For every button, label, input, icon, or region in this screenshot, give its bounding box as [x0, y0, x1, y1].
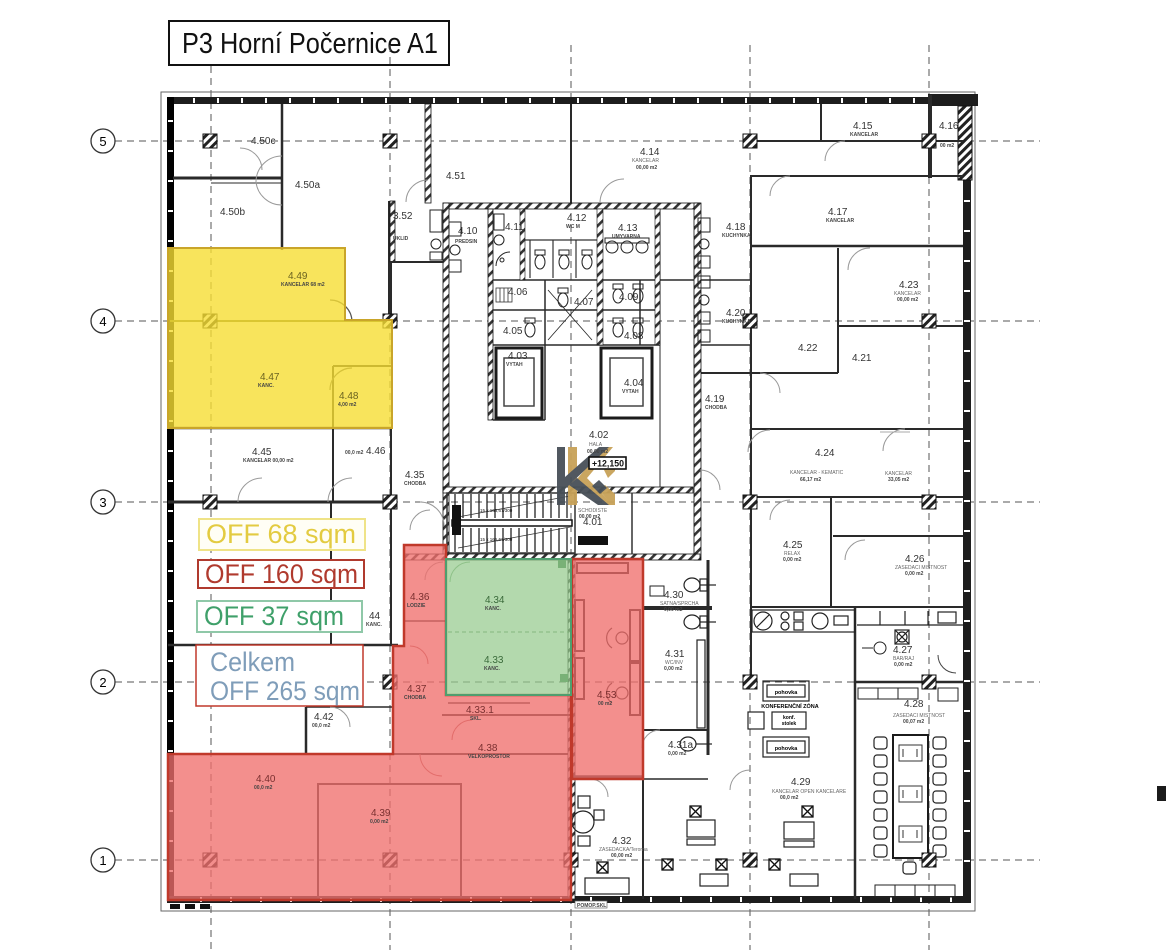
svg-text:+12,150: +12,150 — [592, 459, 624, 470]
svg-text:4.39: 4.39 — [371, 808, 391, 819]
svg-text:OFF 160 sqm: OFF 160 sqm — [205, 559, 358, 589]
svg-text:2: 2 — [99, 675, 106, 690]
svg-text:4.18: 4.18 — [726, 222, 746, 233]
svg-text:VYTAH: VYTAH — [506, 362, 523, 368]
svg-text:4.21: 4.21 — [852, 353, 872, 364]
svg-text:4.42: 4.42 — [314, 712, 334, 723]
svg-text:66,17 m2: 66,17 m2 — [800, 477, 821, 483]
svg-text:KUCHYNKA: KUCHYNKA — [722, 319, 751, 325]
svg-text:4,00 m2: 4,00 m2 — [338, 402, 357, 408]
svg-text:0,00 m2: 0,00 m2 — [668, 751, 687, 757]
svg-text:KANCELAR 68 m2: KANCELAR 68 m2 — [281, 282, 325, 288]
svg-text:WC M: WC M — [566, 224, 580, 230]
svg-text:00,0 m2: 00,0 m2 — [780, 795, 799, 801]
svg-text:0,00 m2: 0,00 m2 — [783, 557, 802, 563]
svg-text:4.02: 4.02 — [589, 430, 609, 441]
svg-text:0,00 m2: 0,00 m2 — [905, 571, 924, 577]
svg-text:VELKOPROSTOR: VELKOPROSTOR — [468, 754, 510, 760]
svg-text:33,05 m2: 33,05 m2 — [888, 477, 909, 483]
svg-text:4.15: 4.15 — [853, 121, 873, 132]
svg-text:4.26: 4.26 — [905, 554, 925, 565]
svg-text:00,00 m2: 00,00 m2 — [897, 297, 918, 303]
svg-text:4.30: 4.30 — [664, 590, 684, 601]
svg-text:KANCELAR - KEMATIC: KANCELAR - KEMATIC — [790, 470, 844, 476]
svg-text:4.04: 4.04 — [624, 378, 644, 389]
svg-text:4.31a: 4.31a — [668, 740, 693, 751]
svg-text:4.22: 4.22 — [798, 343, 818, 354]
svg-text:15 x 166,67/300: 15 x 166,67/300 — [480, 508, 513, 513]
svg-text:4.12: 4.12 — [567, 213, 587, 224]
svg-text:4.31: 4.31 — [665, 649, 685, 660]
svg-text:4.07: 4.07 — [574, 297, 594, 308]
svg-text:4.10: 4.10 — [458, 226, 478, 237]
svg-text:0,00 m2: 0,00 m2 — [370, 819, 389, 825]
svg-text:KANCELAR 00,00 m2: KANCELAR 00,00 m2 — [243, 458, 294, 464]
svg-text:P3 Horní Počernice A1: P3 Horní Počernice A1 — [182, 28, 438, 60]
svg-text:4.09: 4.09 — [619, 292, 639, 303]
svg-text:CHODBA: CHODBA — [404, 481, 426, 487]
svg-text:4.34: 4.34 — [485, 595, 505, 606]
svg-text:4.14: 4.14 — [640, 147, 660, 158]
svg-text:4.05: 4.05 — [503, 326, 523, 337]
svg-text:4.25: 4.25 — [783, 540, 803, 551]
svg-text:3: 3 — [99, 495, 106, 510]
svg-text:4.45: 4.45 — [252, 447, 272, 458]
svg-text:0,00 m2: 0,00 m2 — [664, 607, 683, 613]
svg-text:PREDSIN: PREDSIN — [455, 239, 478, 245]
svg-text:00,0 m2: 00,0 m2 — [345, 450, 364, 456]
svg-text:KANC.: KANC. — [485, 606, 501, 612]
svg-text:4.53: 4.53 — [597, 690, 617, 701]
svg-text:4.50c: 4.50c — [251, 136, 275, 147]
svg-text:OFF 68 sqm: OFF 68 sqm — [206, 519, 356, 549]
svg-text:00,00 m2: 00,00 m2 — [579, 514, 600, 520]
svg-text:OFF 37 sqm: OFF 37 sqm — [204, 601, 344, 631]
svg-text:OFF 265 sqm: OFF 265 sqm — [210, 676, 360, 706]
svg-text:4.35: 4.35 — [405, 470, 425, 481]
svg-text:0,00 m2: 0,00 m2 — [664, 666, 683, 672]
svg-text:pohovka: pohovka — [775, 690, 799, 696]
svg-text:4.03: 4.03 — [508, 351, 528, 362]
svg-text:00 m2: 00 m2 — [940, 143, 954, 149]
svg-text:00,07 m2: 00,07 m2 — [903, 719, 924, 725]
svg-text:4.29: 4.29 — [791, 777, 811, 788]
svg-text:KUCHYNKA: KUCHYNKA — [722, 233, 751, 239]
svg-text:VYTAH: VYTAH — [622, 389, 639, 395]
svg-text:CHODBA: CHODBA — [705, 405, 727, 411]
svg-text:UMYVARNA: UMYVARNA — [612, 234, 641, 240]
svg-text:4.13: 4.13 — [618, 223, 638, 234]
svg-text:4.06: 4.06 — [508, 287, 528, 298]
svg-text:4.33.1: 4.33.1 — [466, 705, 494, 716]
svg-text:00,00 m2: 00,00 m2 — [587, 449, 608, 455]
svg-text:UKLID: UKLID — [393, 236, 409, 242]
svg-text:4.17: 4.17 — [828, 207, 848, 218]
svg-text:LODZIE: LODZIE — [407, 603, 426, 609]
svg-text:00,00 m2: 00,00 m2 — [611, 853, 632, 859]
svg-text:00,0 m2: 00,0 m2 — [312, 723, 331, 729]
svg-text:4.38: 4.38 — [478, 743, 498, 754]
svg-text:SKL.: SKL. — [470, 716, 482, 722]
svg-text:KANC.: KANC. — [258, 383, 274, 389]
svg-text:4.50b: 4.50b — [220, 207, 245, 218]
svg-text:4.20: 4.20 — [726, 308, 746, 319]
svg-text:4.08: 4.08 — [624, 331, 644, 342]
svg-text:0,00 m2: 0,00 m2 — [894, 662, 913, 668]
svg-text:3.52: 3.52 — [393, 211, 413, 222]
svg-text:KONFERENČNÍ ZÓNA: KONFERENČNÍ ZÓNA — [761, 702, 818, 710]
svg-text:4.24: 4.24 — [815, 448, 835, 459]
svg-text:4.28: 4.28 — [904, 699, 924, 710]
svg-text:KANCELAR: KANCELAR — [850, 132, 878, 138]
svg-text:4.11: 4.11 — [505, 222, 524, 233]
svg-text:4.46: 4.46 — [366, 446, 386, 457]
svg-text:4: 4 — [99, 314, 106, 329]
svg-text:4.51: 4.51 — [446, 171, 466, 182]
svg-text:44: 44 — [369, 611, 381, 622]
svg-text:15 x 166,67/300: 15 x 166,67/300 — [480, 537, 513, 542]
svg-text:pohovka: pohovka — [775, 746, 799, 752]
svg-text:4.50a: 4.50a — [295, 180, 320, 191]
svg-text:00,0 m2: 00,0 m2 — [254, 785, 273, 791]
svg-text:CHODBA: CHODBA — [404, 695, 426, 701]
svg-text:HALA: HALA — [589, 442, 603, 448]
svg-text:stolek: stolek — [782, 721, 797, 727]
svg-text:Celkem: Celkem — [210, 647, 295, 677]
svg-text:4.27: 4.27 — [893, 645, 913, 656]
svg-text:4.33: 4.33 — [484, 655, 504, 666]
svg-text:KANC.: KANC. — [366, 622, 382, 628]
svg-text:4.23: 4.23 — [899, 280, 919, 291]
svg-text:4.36: 4.36 — [410, 592, 430, 603]
svg-text:00 m2: 00 m2 — [598, 701, 612, 707]
svg-text:5: 5 — [99, 134, 106, 149]
svg-text:4.16: 4.16 — [939, 121, 959, 132]
svg-text:4.40: 4.40 — [256, 774, 276, 785]
svg-text:4.48: 4.48 — [339, 391, 359, 402]
svg-text:00,00 m2: 00,00 m2 — [636, 165, 657, 171]
svg-text:4.19: 4.19 — [705, 394, 725, 405]
svg-text:1: 1 — [99, 853, 106, 868]
svg-text:KANC.: KANC. — [484, 666, 500, 672]
svg-text:4.32: 4.32 — [612, 836, 632, 847]
svg-text:4.49: 4.49 — [288, 271, 308, 282]
svg-text:KANCELAR: KANCELAR — [826, 218, 854, 224]
svg-text:POMOP.SKL: POMOP.SKL — [577, 903, 606, 909]
svg-text:KANCELAR: KANCELAR — [632, 158, 659, 164]
svg-text:4.47: 4.47 — [260, 372, 280, 383]
svg-text:4.37: 4.37 — [407, 684, 427, 695]
